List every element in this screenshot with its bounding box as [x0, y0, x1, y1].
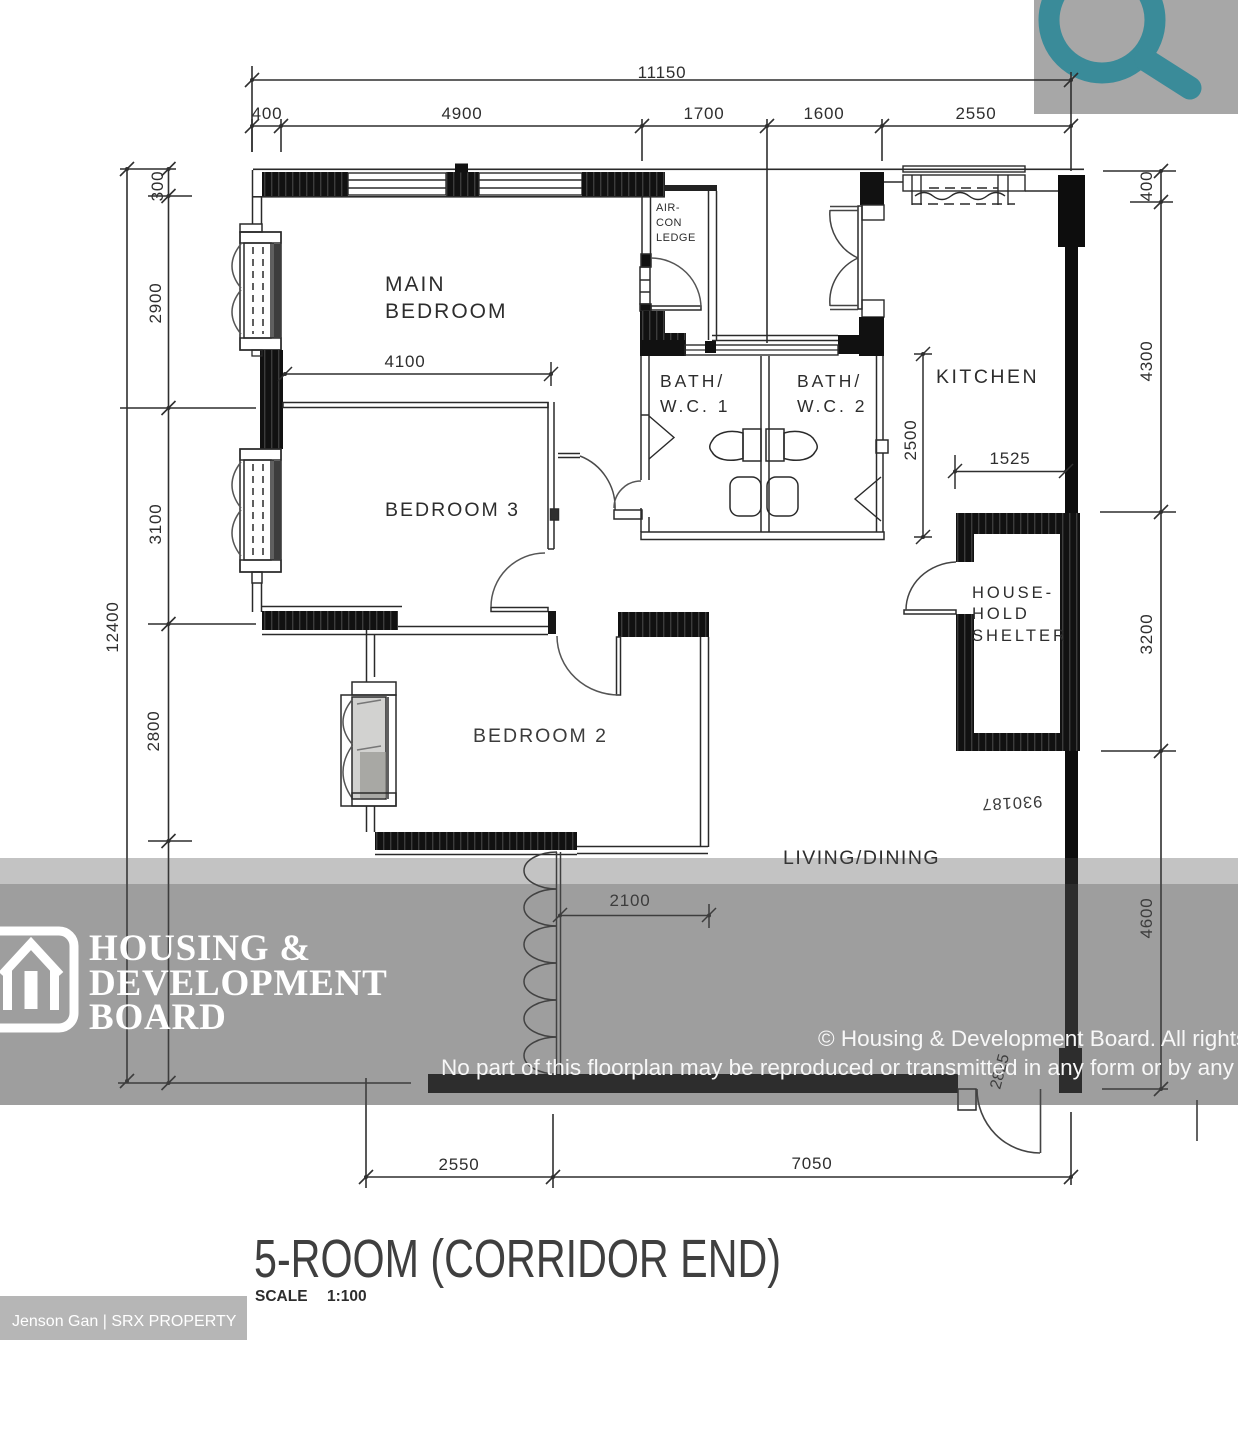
svg-text:1600: 1600 — [803, 104, 844, 123]
svg-text:3100: 3100 — [146, 503, 165, 544]
svg-text:2550: 2550 — [955, 104, 996, 123]
svg-text:1700: 1700 — [683, 104, 724, 123]
svg-text:930187: 930187 — [981, 792, 1043, 813]
svg-text:400: 400 — [252, 104, 283, 123]
svg-text:SCALE: SCALE — [255, 1288, 308, 1305]
svg-text:LEDGE: LEDGE — [656, 232, 696, 244]
svg-text:BATH/: BATH/ — [660, 371, 725, 391]
svg-text:1:100: 1:100 — [327, 1288, 367, 1305]
svg-text:2800: 2800 — [144, 710, 163, 751]
svg-text:300: 300 — [148, 171, 167, 202]
svg-text:Jenson Gan | SRX PROPERTY: Jenson Gan | SRX PROPERTY — [12, 1313, 237, 1330]
svg-text:CON: CON — [656, 217, 682, 229]
svg-text:1525: 1525 — [989, 449, 1030, 468]
svg-text:2500: 2500 — [901, 419, 920, 460]
svg-text:KITCHEN: KITCHEN — [936, 366, 1039, 388]
svg-text:BEDROOM 3: BEDROOM 3 — [385, 499, 520, 521]
svg-text:400: 400 — [1137, 171, 1156, 202]
svg-text:HOUSE-: HOUSE- — [972, 584, 1054, 602]
svg-text:5-ROOM (CORRIDOR END): 5-ROOM (CORRIDOR END) — [254, 1229, 781, 1289]
svg-text:12400: 12400 — [103, 601, 122, 652]
svg-text:MAIN: MAIN — [385, 273, 446, 296]
svg-text:BEDROOM: BEDROOM — [385, 300, 508, 323]
svg-text:BOARD: BOARD — [89, 997, 227, 1038]
svg-text:3200: 3200 — [1137, 613, 1156, 654]
svg-text:4900: 4900 — [441, 104, 482, 123]
svg-text:© Housing & Development Board.: © Housing & Development Board. All right… — [818, 1026, 1238, 1051]
svg-text:W.C. 2: W.C. 2 — [797, 396, 868, 416]
svg-text:No part of this floorplan may: No part of this floorplan may be reprodu… — [441, 1055, 1238, 1080]
svg-text:HOLD: HOLD — [972, 605, 1030, 623]
svg-text:2550: 2550 — [438, 1155, 479, 1174]
svg-text:SHELTER: SHELTER — [972, 627, 1068, 645]
svg-text:W.C. 1: W.C. 1 — [660, 396, 731, 416]
svg-text:4300: 4300 — [1137, 340, 1156, 381]
svg-text:AIR-: AIR- — [656, 202, 680, 214]
svg-text:7050: 7050 — [791, 1154, 832, 1173]
svg-text:BATH/: BATH/ — [797, 371, 862, 391]
svg-text:BEDROOM 2: BEDROOM 2 — [473, 725, 608, 747]
svg-text:11150: 11150 — [638, 63, 687, 82]
svg-text:4100: 4100 — [384, 352, 425, 371]
svg-text:2900: 2900 — [146, 282, 165, 323]
